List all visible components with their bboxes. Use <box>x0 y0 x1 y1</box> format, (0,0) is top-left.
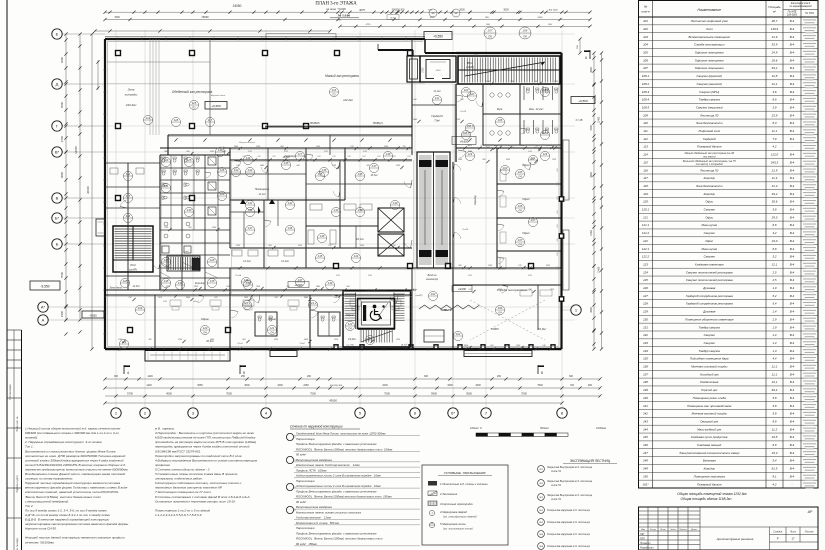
svg-text:107: 107 <box>531 218 536 222</box>
svg-text:плотностью не ниже Д700 разме: плотностью не ниже Д700 размеров 300/250… <box>25 454 126 458</box>
svg-text:4500: 4500 <box>60 101 64 108</box>
svg-text:Большой обеденный зал ресторан: Большой обеденный зал ресторана ( на 75 <box>683 159 736 163</box>
svg-text:200: 200 <box>497 375 502 378</box>
svg-text:АР: АР <box>807 510 813 514</box>
svg-text:7.Экспликацию помещения см 17: 7.Экспликацию помещения см 17 лист. <box>155 490 212 494</box>
svg-text:В-4: В-4 <box>790 310 795 314</box>
svg-text:130: 130 <box>178 281 183 285</box>
svg-text:Офис: Офис <box>522 197 530 201</box>
svg-text:Тамбур санузла: Тамбур санузла <box>699 98 721 102</box>
svg-text:6*: 6* <box>451 410 455 415</box>
svg-text:В-4: В-4 <box>790 239 795 243</box>
svg-text:3300: 3300 <box>590 307 593 313</box>
svg-text:5,4: 5,4 <box>772 302 776 306</box>
svg-text:108.4: 108.4 <box>642 98 650 102</box>
svg-text:Подсобное помещение бара: Подсобное помещение бара <box>690 357 729 361</box>
svg-text:Санузел: Санузел <box>704 231 716 235</box>
svg-text:136: 136 <box>288 226 293 230</box>
svg-text:111: 111 <box>435 96 440 100</box>
svg-text:115: 115 <box>643 160 648 164</box>
svg-text:Лестница Л3: Лестница Л3 <box>699 113 719 117</box>
svg-text:Стадия: Стадия <box>773 531 783 534</box>
svg-text:115: 115 <box>192 101 197 105</box>
svg-text:101: 101 <box>643 19 648 23</box>
svg-text:Гардероб: Гардероб <box>431 114 443 118</box>
svg-text:4725: 4725 <box>366 24 372 26</box>
svg-text:6,8: 6,8 <box>772 223 776 227</box>
svg-text:300300 300: 300300 300 <box>392 9 405 12</box>
svg-text:УСЛОВНЫЕ ОБОЗНАЧЕНИЯ:: УСЛОВНЫЕ ОБОЗНАЧЕНИЯ: <box>444 471 487 475</box>
svg-text:12,1м²: 12,1м² <box>281 259 289 263</box>
svg-text:134: 134 <box>248 208 253 212</box>
svg-text:Холодный цех: Холодный цех <box>699 372 720 376</box>
svg-text:Е: Е <box>56 31 59 36</box>
svg-text:В-4: В-4 <box>790 129 795 133</box>
svg-text:1-1,2-2,3-3,4-4,5-5,6-6,7-7,8-: 1-1,2-2,3-3,4-4,5-5,6-6,7-7,8-8,9-9 <box>155 513 202 517</box>
svg-text:В-4: В-4 <box>790 357 795 361</box>
svg-text:139,9: 139,9 <box>771 27 779 31</box>
svg-text:107: 107 <box>643 66 648 70</box>
svg-text:4800: 4800 <box>60 171 64 178</box>
svg-text:вентилируемого фасада фирмы Го: вентилируемого фасада фирмы Голдстар с н… <box>25 486 128 490</box>
svg-text:Пароизоляция: Пароизоляция <box>296 526 315 530</box>
svg-text:5/3/198/198 мм/ГОСТ 23279-851.: 5/3/198/198 мм/ГОСТ 23279-851. <box>155 449 201 453</box>
svg-text:116: 116 <box>174 118 179 122</box>
svg-text:129: 129 <box>643 310 648 314</box>
svg-text:В-4: В-4 <box>790 349 795 353</box>
svg-text:12,8: 12,8 <box>772 74 778 78</box>
svg-text:этажей).: этажей). <box>25 436 38 440</box>
svg-text:149: 149 <box>643 467 648 471</box>
svg-text:146: 146 <box>244 278 249 282</box>
svg-text:16,8: 16,8 <box>772 435 778 439</box>
svg-text:(см.КР): (см.КР) <box>416 295 423 297</box>
svg-text:типа Л1: типа Л1 <box>551 470 562 473</box>
svg-text:140: 140 <box>643 396 648 400</box>
svg-text:5,8: 5,8 <box>772 396 776 400</box>
svg-text:7500: 7500 <box>60 271 64 278</box>
svg-text:В-4: В-4 <box>790 443 795 447</box>
svg-text:Гардероб сотрудников ресторана: Гардероб сотрудников ресторана <box>686 302 733 306</box>
svg-text:В-4: В-4 <box>790 262 795 266</box>
svg-text:Подпись: Подпись <box>679 528 687 531</box>
svg-text:135: 135 <box>643 357 648 361</box>
svg-text:149: 149 <box>328 281 333 285</box>
svg-text:111: 111 <box>643 129 648 133</box>
svg-text:3,9: 3,9 <box>772 105 776 109</box>
svg-text:В-4: В-4 <box>790 412 795 416</box>
svg-text:Профиль Вентилируемого фасада: Профиль Вентилируемого фасада с навесным… <box>296 531 377 535</box>
svg-text:изоляции по этому направлению.: изоляции по этому направлению. <box>25 477 73 481</box>
svg-text:Тамбур санузла: Тамбур санузла <box>699 325 721 329</box>
svg-text:ГЛАВН.: ГЛАВН. <box>491 328 500 331</box>
svg-text:Пароизоляция: Пароизоляция <box>296 479 315 483</box>
svg-text:Открытая наружная ж.б. лестниц: Открытая наружная ж.б. лестница <box>547 521 590 524</box>
svg-text:По оси 8 между осями 1-2, 3-4: По оси 8 между осями 1-2, 3-4 ,5-6, по о… <box>25 508 107 512</box>
svg-text:63,2: 63,2 <box>772 66 778 70</box>
svg-text:148: 148 <box>643 459 648 463</box>
svg-text:'Венти Баттс'(150мм) жестких: 'Венти Баттс'(150мм) жестких базальтовых… <box>25 495 101 499</box>
svg-text:5,2: 5,2 <box>772 294 776 298</box>
svg-text:26,6: 26,6 <box>771 58 778 62</box>
svg-text:Ветрозащитная мембрана: Ветрозащитная мембрана <box>296 458 332 462</box>
svg-text:Общая площадь здания 1198,3м²: Общая площадь здания 1198,3м² <box>680 497 732 501</box>
svg-text:107: 107 <box>518 238 523 242</box>
svg-text:12,1м²: 12,1м² <box>258 193 265 196</box>
svg-text:12,3м²: 12,3м² <box>132 285 139 288</box>
svg-text:Холл: Холл <box>705 27 713 31</box>
svg-text:600/600 (см подвального этажа: 600/600 (см подвального этажа и 300/300 … <box>25 431 119 435</box>
svg-text:Общая площадь помещений этажа: Общая площадь помещений этажа 1292,6м² <box>677 492 748 496</box>
svg-text:Открытая наружная ж.б. лестниц: Открытая наружная ж.б. лестница <box>547 509 590 512</box>
svg-text:П4: П4 <box>518 208 522 212</box>
svg-text:117: 117 <box>126 194 131 198</box>
svg-text:профилем.: профилем. <box>155 463 171 467</box>
svg-text:3,8: 3,8 <box>772 208 776 212</box>
svg-text:А*: А* <box>41 304 46 309</box>
svg-text:В-4: В-4 <box>790 90 795 94</box>
svg-text:2700: 2700 <box>60 135 64 142</box>
svg-text:117: 117 <box>298 152 303 156</box>
svg-text:1500: 1500 <box>114 16 120 19</box>
svg-text:В-4: В-4 <box>790 270 795 274</box>
svg-text:Малый обеденный зал ресторана: Малый обеденный зал ресторана (на 48 <box>684 151 734 155</box>
svg-text:Жен. 12,1м²: Жен. 12,1м² <box>528 107 544 111</box>
svg-text:121: 121 <box>270 326 275 330</box>
svg-text:11,3: 11,3 <box>772 176 778 180</box>
svg-text:Б*: Б* <box>55 215 60 220</box>
svg-text:производить на растворе марки: производить на растворе марки не ниже М7… <box>155 440 256 444</box>
svg-text:+9,550: +9,550 <box>578 99 588 103</box>
svg-text:ВС3: ВС3 <box>468 61 474 65</box>
svg-text:П1: П1 <box>431 523 434 525</box>
svg-text:Мини-кухня: Мини-кухня <box>701 223 717 227</box>
svg-text:18,3м²: 18,3м² <box>370 174 377 177</box>
svg-text:130: 130 <box>643 317 648 321</box>
svg-text:7500: 7500 <box>384 392 390 396</box>
svg-text:3300: 3300 <box>590 172 593 178</box>
svg-text:Архитектурные решения: Архитектурные решения <box>716 537 754 541</box>
svg-text:Санузел (женский): Санузел (женский) <box>697 82 722 86</box>
svg-text:102: 102 <box>431 292 436 296</box>
svg-text:110: 110 <box>470 92 475 96</box>
svg-text:4.Вибрации наслаждения Выполня: 4.Вибрации наслаждения Выполняются по ос… <box>155 458 258 462</box>
svg-text:5,8: 5,8 <box>772 404 776 408</box>
svg-text:Асбестоцементные листы 2 слоя: Асбестоцементные листы 2 слоя В шахматно… <box>295 474 381 478</box>
svg-text:А: А <box>42 317 45 322</box>
svg-text:5900: 5900 <box>431 392 437 396</box>
svg-text:Наименование: Наименование <box>698 8 722 12</box>
svg-text:Коридор: Коридор <box>195 281 206 285</box>
svg-text:Моечная столовой посуды: Моечная столовой посуды <box>691 365 728 369</box>
svg-text:По ПУЭ: По ПУЭ <box>805 12 814 15</box>
svg-text:перегородки армируются через 4: перегородки армируются через 4 ряда клад… <box>155 445 250 449</box>
svg-text:3300: 3300 <box>590 67 593 73</box>
svg-text:3,2: 3,2 <box>772 255 776 259</box>
svg-text:Санузел посетителей ресторана: Санузел посетителей ресторана <box>686 278 733 282</box>
svg-text:122: 122 <box>348 322 353 326</box>
svg-text:Муж.: Муж. <box>497 107 503 111</box>
svg-text:Санузел: Санузел <box>704 333 716 337</box>
svg-text:П4: П4 <box>270 330 274 334</box>
svg-text:эстрады: эстрады <box>125 93 138 97</box>
svg-text:Коридор: Коридор <box>474 195 477 205</box>
svg-text:1000: 1000 <box>436 70 442 72</box>
svg-text:108.3: 108.3 <box>467 124 474 128</box>
svg-text:144: 144 <box>246 156 251 160</box>
svg-text:133: 133 <box>248 168 253 172</box>
svg-text:пос.мест) с эстрадой: пос.мест) с эстрадой <box>696 162 724 166</box>
svg-text:105: 105 <box>643 51 648 55</box>
svg-text:Мини-кухня: Мини-кухня <box>701 247 717 251</box>
svg-text:В-4: В-4 <box>790 51 795 55</box>
svg-text:102: 102 <box>456 332 461 336</box>
svg-text:Разработал: Разработал <box>640 547 654 549</box>
svg-text:105: 105 <box>518 170 523 174</box>
svg-text:В-4: В-4 <box>790 278 795 282</box>
svg-text:Офис: Офис <box>705 239 713 243</box>
svg-text:Перегородки запроектированы по: Перегородки запроектированы по кладочной… <box>155 454 242 458</box>
svg-text:Санузел (МГН): Санузел (МГН) <box>699 90 719 94</box>
svg-text:переходных балконов смотреть к: переходных балконов смотреть комплект КР… <box>155 486 223 490</box>
svg-text:3.Кирпичные перегородки: 3.Кирпичные перегородки <box>440 502 473 506</box>
svg-text:типа Л1: типа Л1 <box>551 484 562 487</box>
svg-text:Наружной частью ограждающей ко: Наружной частью ограждающей конструкции … <box>25 481 120 485</box>
svg-text:6,8: 6,8 <box>772 247 776 251</box>
svg-text:700: 700 <box>570 384 575 387</box>
svg-text:Овощной цех: Овощной цех <box>700 419 719 423</box>
svg-text:(см.КР): (см.КР) <box>129 269 137 272</box>
svg-text:2,9м²: 2,9м² <box>182 250 189 253</box>
svg-text:142: 142 <box>643 412 648 416</box>
svg-text:Согласовано: Согласовано <box>8 384 12 400</box>
svg-text:18,3: 18,3 <box>772 451 778 455</box>
svg-text:23,0: 23,0 <box>771 239 778 243</box>
svg-text:2230: 2230 <box>382 384 388 387</box>
svg-text:119: 119 <box>138 306 143 310</box>
svg-text:Гардероб: Гардероб <box>703 137 716 141</box>
svg-text:ГАП: ГАП <box>640 533 645 536</box>
svg-text:17: 17 <box>791 537 795 541</box>
svg-text:(175): (175) <box>390 17 395 19</box>
svg-text:ROCKWOOL 'Венти Баттс'(150мм): ROCKWOOL 'Венти Баттс'(150мм) жестких ба… <box>296 537 383 541</box>
svg-text:61,5: 61,5 <box>772 467 778 471</box>
svg-text:П4: П4 <box>518 242 522 246</box>
svg-text:Возобновления стенах Данной ча: Возобновления стенах Данной части- самон… <box>25 472 125 476</box>
svg-text:Подпись и дата: Подпись и дата <box>16 475 19 493</box>
svg-text:11,1: 11,1 <box>772 129 778 133</box>
svg-text:12,3: 12,3 <box>772 184 778 188</box>
svg-text:121.1: 121.1 <box>642 223 650 227</box>
svg-text:2. Наружные ограждающие констр: 2. Наружные ограждающие конструкции 3-го… <box>24 440 102 444</box>
svg-text:3000: 3000 <box>503 9 509 12</box>
svg-text:128: 128 <box>210 258 215 262</box>
svg-text:121: 121 <box>643 215 648 219</box>
svg-text:108.5: 108.5 <box>642 105 650 109</box>
svg-text:В-4: В-4 <box>790 247 795 251</box>
svg-text:15060: 15060 <box>201 15 209 19</box>
svg-text:24,9: 24,9 <box>771 51 778 55</box>
svg-text:147: 147 <box>643 451 648 455</box>
svg-text:1,9: 1,9 <box>772 286 776 290</box>
svg-text:В-4: В-4 <box>790 19 795 23</box>
svg-text:Кладовая инвентаря: Кладовая инвентаря <box>695 262 724 266</box>
svg-text:127: 127 <box>643 294 648 298</box>
svg-text:114: 114 <box>643 153 648 157</box>
svg-text:1,4: 1,4 <box>772 341 776 345</box>
svg-text:3700: 3700 <box>590 125 593 131</box>
svg-text:1420: 1420 <box>146 384 152 387</box>
svg-text:3200: 3200 <box>60 56 64 63</box>
svg-text:Моечная кухонной посуды: Моечная кухонной посуды <box>692 412 728 416</box>
svg-text:113: 113 <box>146 116 151 120</box>
svg-text:142: 142 <box>288 201 293 205</box>
svg-text:Сл.04: Сл.04 <box>235 274 242 277</box>
svg-text:122: 122 <box>643 239 648 243</box>
svg-text:В-4: В-4 <box>790 66 795 70</box>
svg-text:Научите типа СИ-50.: Научите типа СИ-50. <box>25 527 57 531</box>
svg-text:Зона безопасности: Зона безопасности <box>696 121 723 125</box>
svg-text:Санузел (мужской): Санузел (мужской) <box>697 74 722 78</box>
svg-text:Выполняются из газосиликатных: Выполняются из газосиликатных блоков фир… <box>25 449 116 453</box>
svg-text:7,9: 7,9 <box>772 137 776 141</box>
svg-text:6.Конструкции собственно лестн: 6.Конструкции собственно лестниц, лестни… <box>155 481 242 485</box>
svg-text:Санузел посетителей ресторана: Санузел посетителей ресторана <box>686 270 733 274</box>
svg-text:133: 133 <box>643 341 648 345</box>
svg-text:ПЛАН 3-го ЭТАЖА: ПЛАН 3-го ЭТАЖА <box>315 2 357 7</box>
svg-text:108.2: 108.2 <box>642 82 650 86</box>
svg-text:Санузел: Санузел <box>704 255 716 259</box>
svg-text:114: 114 <box>332 88 337 92</box>
svg-text:Лифтовой холл: Лифтовой холл <box>697 129 720 133</box>
svg-text:В-4: В-4 <box>790 82 795 86</box>
svg-text:Офисное помещение: Офисное помещение <box>695 66 724 70</box>
svg-text:Газобетонный блок Мека-Литка: Газобетонный блок Мека-Литка плотностью … <box>296 432 386 436</box>
svg-text:120.1: 120.1 <box>642 208 650 212</box>
svg-text:В-4: В-4 <box>790 168 795 172</box>
svg-text:Планы навесов 1-го,2-го и 3-го: Планы навесов 1-го,2-го и 3-го зданий <box>155 508 210 512</box>
svg-text:243,3м²: 243,3м² <box>125 103 138 107</box>
svg-text:Вспомогательное помещение: Вспомогательное помещение <box>688 35 730 39</box>
svg-text:Раздаточная: Раздаточная <box>700 380 719 384</box>
svg-text:Офис: Офис <box>705 215 713 219</box>
svg-text:300: 300 <box>424 375 429 378</box>
svg-text:2700: 2700 <box>423 67 425 73</box>
svg-text:В-4: В-4 <box>790 153 795 157</box>
svg-text:запроектирована светопрозрачна: запроектирована светопрозрачная система … <box>24 522 129 526</box>
svg-text:147: 147 <box>372 164 377 168</box>
svg-text:31,9: 31,9 <box>772 35 778 39</box>
svg-text:11460: 11460 <box>598 266 601 273</box>
svg-text:Листов: Листов <box>804 531 814 534</box>
svg-text:В-4: В-4 <box>790 294 795 298</box>
svg-text:12,1: 12,1 <box>772 365 778 369</box>
svg-text:3.Перегородки : Выполнить из к: 3.Перегородки : Выполнить из кирпича пус… <box>155 431 254 435</box>
svg-text:145: 145 <box>284 161 289 165</box>
svg-text:Зона расположения технологичес: Зона расположения технологических камер <box>679 451 740 455</box>
svg-text:119: 119 <box>643 192 648 196</box>
svg-text:21,9: 21,9 <box>771 168 778 172</box>
svg-text:108.3: 108.3 <box>642 90 650 94</box>
svg-text:Взам. инв. №: Взам. инв. № <box>16 416 19 431</box>
svg-text:(см. спецификацию дверей): (см. спецификацию дверей) <box>443 515 477 519</box>
svg-text:В-4: В-4 <box>790 27 795 31</box>
svg-text:119: 119 <box>543 152 548 156</box>
svg-text:53,9: 53,9 <box>772 43 778 47</box>
svg-text:пом-я: пом-я <box>642 10 650 14</box>
svg-text:Монолитная ж.б. стена 500 мм: Монолитная ж.б. стена 500 мм <box>296 521 339 525</box>
svg-text:ЛК1: ЛК1 <box>538 469 543 471</box>
svg-text:69,4: 69,4 <box>772 388 778 392</box>
svg-text:90 кг/м³: 90 кг/м³ <box>296 453 306 457</box>
svg-text:Малый зал ресторана: Малый зал ресторана <box>325 74 359 78</box>
svg-text:-: - <box>792 482 793 486</box>
svg-text:7500: 7500 <box>521 392 527 396</box>
svg-text:Пароизоляция: Пароизоляция <box>296 437 315 441</box>
svg-text:108.1: 108.1 <box>542 88 549 92</box>
svg-text:по взрывопожарной: по взрывопожарной <box>789 5 812 8</box>
svg-text:7,9м²: 7,9м² <box>434 120 440 123</box>
svg-text:В-4: В-4 <box>790 160 795 164</box>
svg-text:П4: П4 <box>518 174 522 178</box>
svg-text:139: 139 <box>643 388 648 392</box>
svg-text:В-4: В-4 <box>790 388 795 392</box>
svg-text:134: 134 <box>643 349 648 353</box>
svg-text:2600: 2600 <box>459 9 465 12</box>
svg-text:Сл.08: Сл.08 <box>462 229 469 231</box>
svg-text:121.2: 121.2 <box>310 301 317 305</box>
svg-text:эскалатор: эскалатор <box>426 278 439 281</box>
svg-text:В-4: В-4 <box>790 302 795 306</box>
svg-text:В-4: В-4 <box>790 333 795 337</box>
svg-text:110: 110 <box>643 121 648 125</box>
svg-text:Профиль Вентилируемого фасада: Профиль Вентилируемого фасада с навесным… <box>296 489 377 493</box>
svg-text:+9,600: +9,600 <box>211 104 221 108</box>
svg-text:Д: Д <box>56 81 59 86</box>
svg-text:В-4: В-4 <box>790 113 795 117</box>
svg-text:1,3м²: 1,3м² <box>299 342 305 345</box>
svg-text:1.Несущий остов сборно-монолит: 1.Несущий остов сборно-монолитный ж.б. к… <box>25 427 121 431</box>
svg-text:5700: 5700 <box>127 392 133 396</box>
svg-text:ЭКСПЛИКАЦИЯ ЛЕСТНИЦ: ЭКСПЛИКАЦИЯ ЛЕСТНИЦ <box>570 459 611 463</box>
svg-text:10,1: 10,1 <box>772 380 778 384</box>
svg-text:146: 146 <box>643 443 648 447</box>
svg-text:Лестница Л2: Лестница Л2 <box>699 168 719 172</box>
svg-text:Кладовая сухих продуктов: Кладовая сухих продуктов <box>691 435 728 439</box>
svg-text:Дата: Дата <box>690 529 698 531</box>
svg-text:104: 104 <box>498 306 503 310</box>
svg-text:Офисное помещение: Офисное помещение <box>695 51 724 55</box>
svg-text:108: 108 <box>498 118 503 122</box>
svg-text:Профиль ЛСТК 100мм: Профиль ЛСТК 100мм <box>296 468 326 472</box>
svg-text:(см.КР): (см.КР) <box>466 66 474 69</box>
svg-text:В-4: В-4 <box>790 200 795 204</box>
svg-text:Верхний свет: Верхний свет <box>211 94 226 97</box>
svg-text:5.Схематичные планы потолков э: 5.Схематичные планы потолков этажа даны … <box>155 472 238 476</box>
svg-text:ROCKWOOL 'Венти Баттс'(150мм): ROCKWOOL 'Венти Баттс'(150мм) жестких ба… <box>296 447 392 451</box>
svg-text:2600: 2600 <box>538 17 544 19</box>
svg-text:Св. ПВ: Св. ПВ <box>347 345 355 347</box>
svg-text:Голдстар металик 12мм: Голдстар металик 12мм <box>296 516 331 520</box>
svg-text:2250: 2250 <box>303 384 309 387</box>
svg-text:Закрытая Внутренняя ж.б. лестн: Закрытая Внутренняя ж.б. лестница <box>547 466 593 469</box>
svg-text:Площадь: Площадь <box>768 5 781 9</box>
svg-text:12,1: 12,1 <box>772 82 778 86</box>
svg-text:500мм: 500мм <box>540 426 549 430</box>
svg-text:Зона безоп.: Зона безоп. <box>109 287 122 290</box>
svg-text:106: 106 <box>518 204 523 208</box>
svg-text:124: 124 <box>164 158 169 162</box>
